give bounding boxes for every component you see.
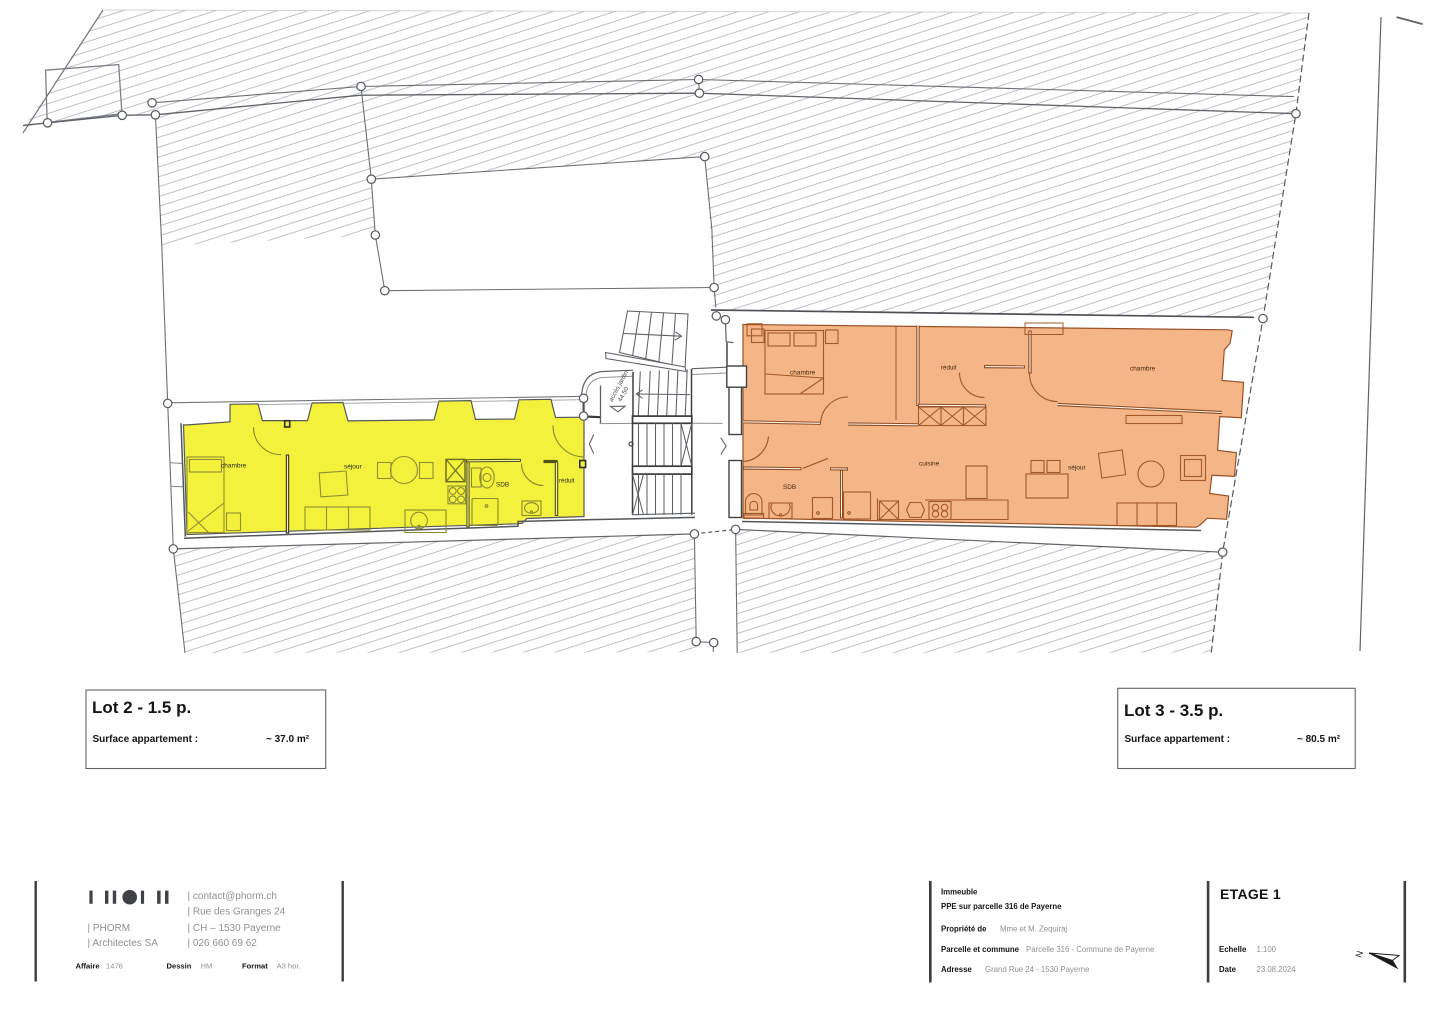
- svg-text:Surface appartement :: Surface appartement :: [93, 734, 199, 745]
- svg-text:Lot 2 - 1.5 p.: Lot 2 - 1.5 p.: [92, 698, 191, 717]
- svg-text:séjour: séjour: [344, 464, 363, 471]
- svg-text:~ 37.0 m²: ~ 37.0 m²: [266, 734, 310, 745]
- svg-text:Affaire: Affaire: [76, 962, 100, 971]
- svg-text:Propriété de: Propriété de: [941, 925, 987, 934]
- svg-text:réduit: réduit: [941, 365, 957, 372]
- svg-text:Lot 3 - 3.5 p.: Lot 3 - 3.5 p.: [1124, 701, 1223, 720]
- svg-text:Immeuble: Immeuble: [941, 888, 978, 897]
- svg-text:| PHORM: | PHORM: [88, 923, 131, 934]
- svg-text:1476: 1476: [106, 962, 123, 971]
- svg-text:Grand Rue 24 - 1530 Payerne: Grand Rue 24 - 1530 Payerne: [985, 965, 1089, 974]
- svg-text:Dessin: Dessin: [167, 962, 192, 971]
- svg-text:chambre: chambre: [221, 463, 247, 470]
- svg-text:chambre: chambre: [1130, 366, 1156, 373]
- svg-text:séjour: séjour: [1068, 465, 1087, 472]
- svg-text:Echelle: Echelle: [1219, 945, 1247, 954]
- svg-text:| 026 660 69 62: | 026 660 69 62: [188, 938, 258, 949]
- svg-text:| Rue des Granges 24: | Rue des Granges 24: [188, 906, 286, 917]
- svg-text:| Architectes SA: | Architectes SA: [88, 938, 159, 949]
- svg-text:Mme et M. Zequiraj: Mme et M. Zequiraj: [1000, 925, 1067, 934]
- svg-text:SDB: SDB: [496, 482, 509, 489]
- svg-text:| contact@phorm.ch: | contact@phorm.ch: [188, 891, 277, 902]
- svg-text:~ 80.5 m²: ~ 80.5 m²: [1297, 734, 1341, 745]
- svg-text:23.08.2024: 23.08.2024: [1257, 965, 1297, 974]
- svg-text:Surface appartement :: Surface appartement :: [1125, 734, 1231, 745]
- svg-text:PPE sur parcelle 316 de Payern: PPE sur parcelle 316 de Payerne: [941, 902, 1062, 911]
- svg-text:| CH – 1530 Payerne: | CH – 1530 Payerne: [188, 923, 282, 934]
- svg-text:HM: HM: [201, 962, 213, 971]
- svg-text:Date: Date: [1219, 965, 1237, 974]
- svg-text:1:100: 1:100: [1257, 945, 1277, 954]
- svg-text:réduit: réduit: [559, 478, 575, 485]
- svg-text:Format: Format: [242, 962, 268, 971]
- svg-text:ETAGE 1: ETAGE 1: [1220, 886, 1281, 902]
- svg-text:Parcelle et commune: Parcelle et commune: [941, 945, 1020, 954]
- svg-text:Adresse: Adresse: [941, 965, 972, 974]
- svg-text:cuisine: cuisine: [919, 461, 940, 468]
- svg-text:chambre: chambre: [790, 370, 816, 377]
- svg-text:Parcelle 316 - Commune de Paye: Parcelle 316 - Commune de Payerne: [1026, 945, 1154, 954]
- svg-text:A3 hor.: A3 hor.: [277, 962, 301, 971]
- svg-text:SDB: SDB: [783, 484, 796, 491]
